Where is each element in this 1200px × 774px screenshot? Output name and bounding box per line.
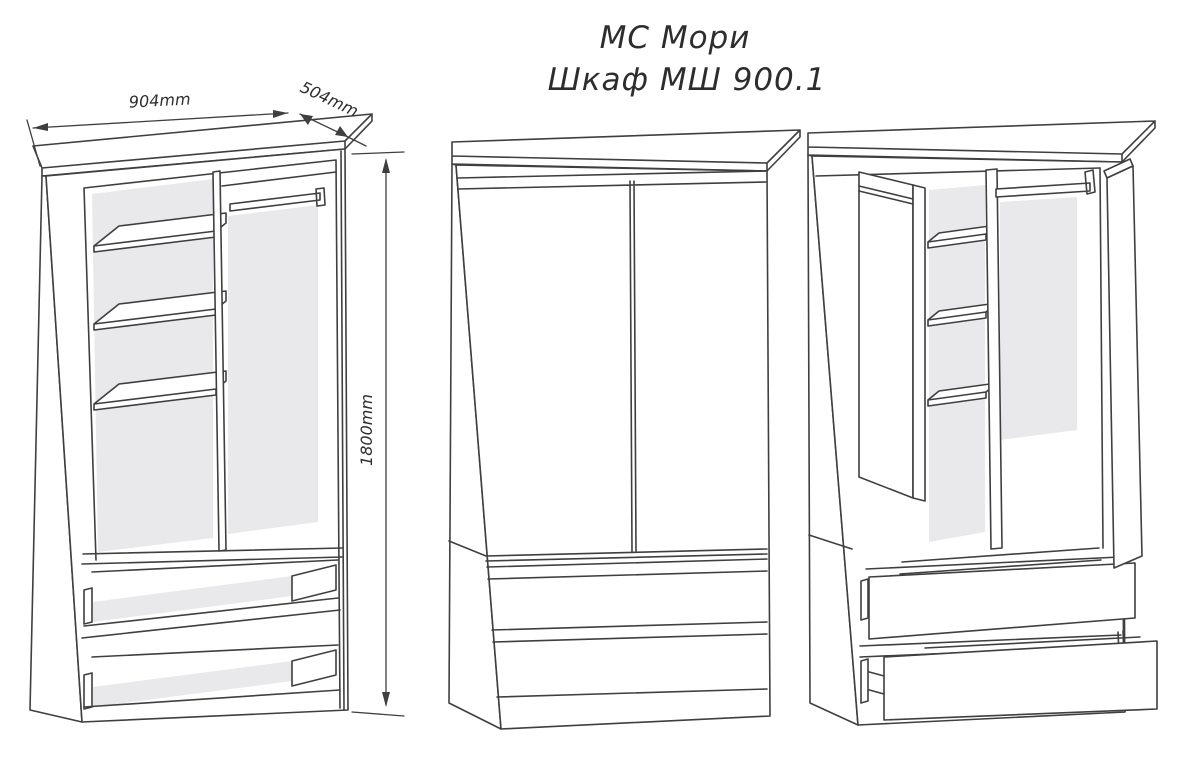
door-inner-face: [859, 172, 913, 498]
left-door-open: [859, 172, 925, 501]
front-face: [456, 165, 770, 729]
drawer-side-wall: [861, 579, 868, 620]
drawer-side-wall: [861, 659, 868, 703]
wardrobe-doors-open-view: [808, 121, 1157, 725]
door-face: [1107, 166, 1142, 568]
back-panel-hanging-column: [1000, 197, 1077, 440]
arrowhead-right: [273, 110, 288, 118]
depth-label: 504mm: [297, 77, 361, 120]
wardrobe-closed-view: [449, 130, 800, 729]
arrowhead-top: [382, 158, 390, 173]
top-panel: [452, 130, 800, 171]
wardrobe-diagram: МС Мори Шкаф МШ 900.1: [0, 0, 1200, 774]
product-name-line1: МС Мори: [600, 20, 751, 56]
technical-drawing-page: МС Мори Шкаф МШ 900.1: [0, 0, 1200, 774]
product-name-line2: Шкаф МШ 900.1: [548, 62, 827, 98]
title-block: МС Мори Шкаф МШ 900.1: [548, 20, 827, 98]
width-label: 904mm: [128, 89, 191, 111]
back-panel-hanging-column: [228, 205, 318, 534]
arrowhead-bottom: [382, 692, 390, 707]
door-edge: [913, 185, 925, 501]
wardrobe-interior-view: [30, 114, 372, 722]
arrowhead-left: [33, 123, 48, 131]
dimension-height: 1800mm: [352, 152, 404, 716]
height-label: 1800mm: [357, 394, 376, 466]
top-panel: [808, 121, 1155, 162]
